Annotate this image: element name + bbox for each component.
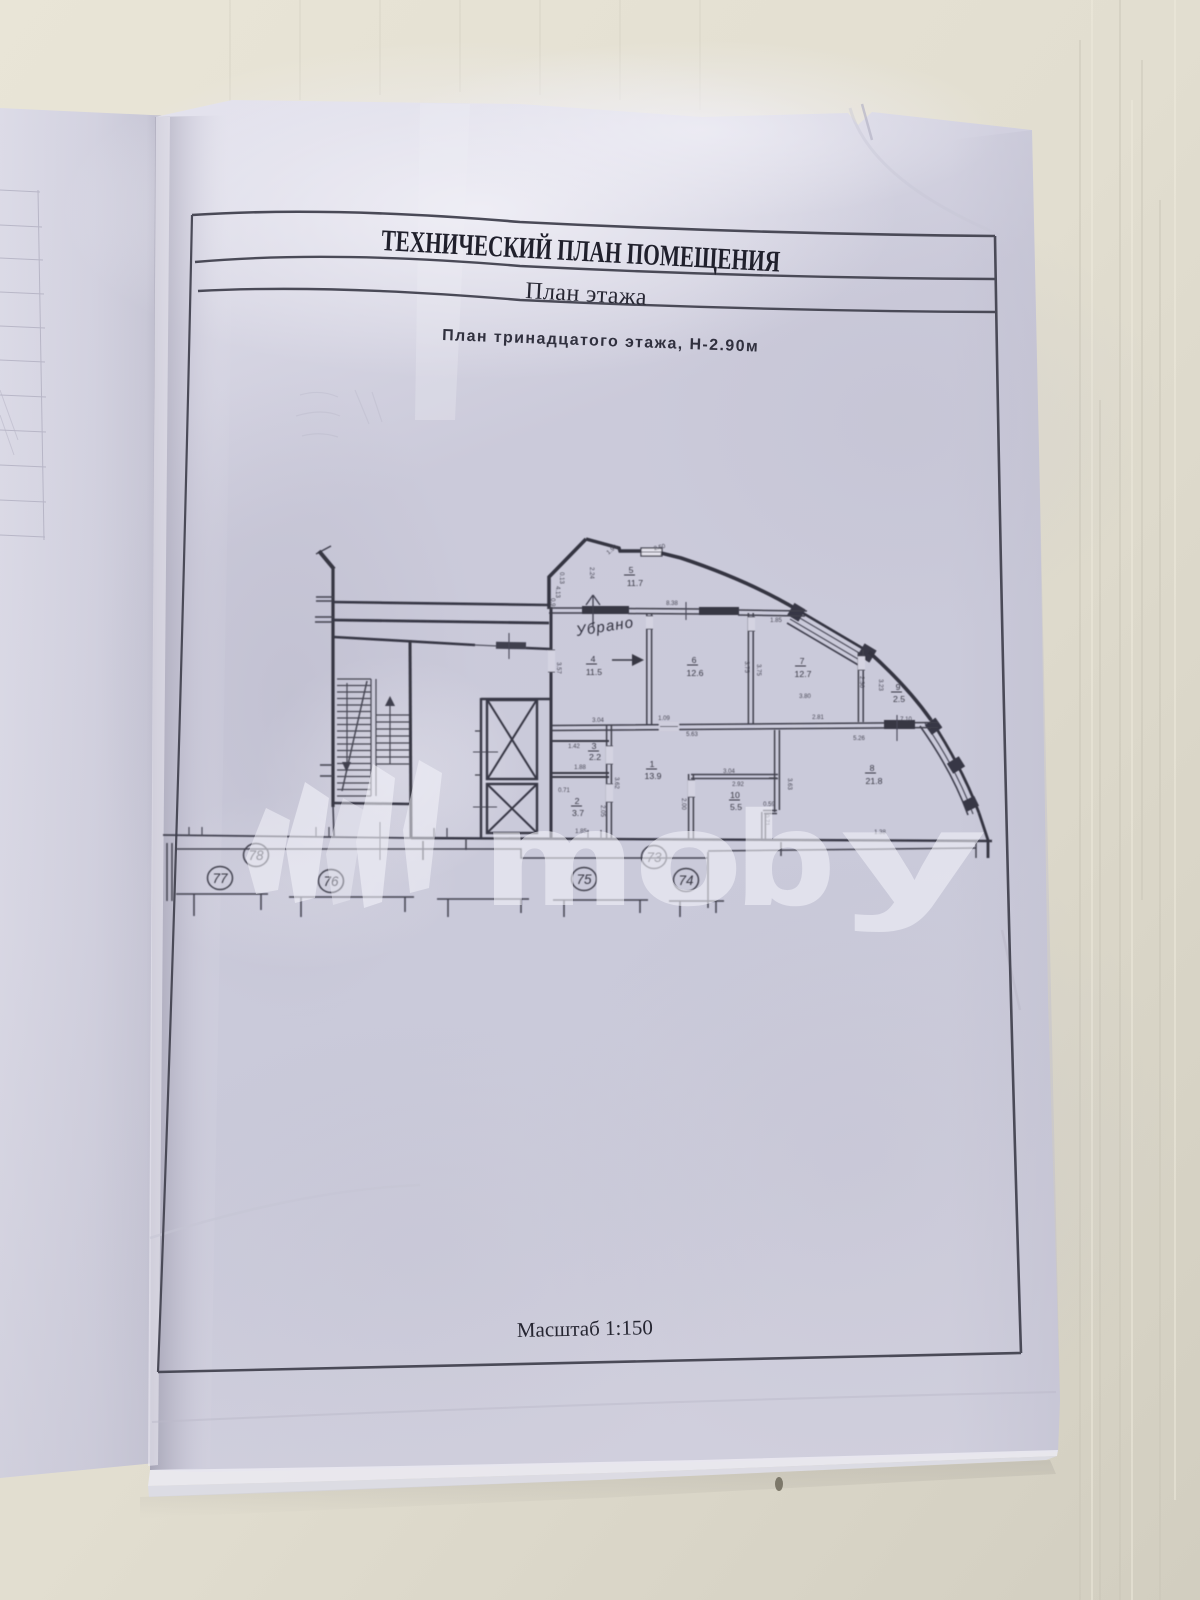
svg-text:2.5: 2.5 bbox=[893, 694, 905, 704]
svg-text:3: 3 bbox=[592, 741, 597, 751]
svg-text:13.9: 13.9 bbox=[645, 771, 662, 781]
svg-text:2.36: 2.36 bbox=[858, 676, 864, 688]
svg-text:3.57: 3.57 bbox=[555, 662, 561, 674]
svg-text:5.26: 5.26 bbox=[853, 736, 865, 742]
svg-text:1.85: 1.85 bbox=[770, 618, 782, 624]
svg-text:2.81: 2.81 bbox=[812, 715, 824, 721]
svg-text:8.38: 8.38 bbox=[666, 601, 678, 607]
svg-text:0.13: 0.13 bbox=[558, 572, 564, 584]
svg-text:6: 6 bbox=[692, 655, 697, 665]
svg-text:0.91: 0.91 bbox=[549, 598, 555, 610]
svg-text:5: 5 bbox=[629, 565, 634, 575]
svg-text:11.7: 11.7 bbox=[627, 578, 643, 588]
svg-text:8: 8 bbox=[870, 763, 875, 773]
svg-text:7.10: 7.10 bbox=[900, 717, 912, 723]
svg-text:3.23: 3.23 bbox=[877, 679, 883, 691]
svg-text:1.42: 1.42 bbox=[568, 744, 580, 750]
svg-text:y: y bbox=[846, 785, 980, 930]
svg-text:7: 7 bbox=[800, 656, 805, 666]
svg-text:11.5: 11.5 bbox=[586, 667, 602, 677]
svg-text:12.7: 12.7 bbox=[795, 669, 812, 679]
svg-text:77: 77 bbox=[212, 871, 228, 886]
svg-text:Масштаб 1:150: Масштаб 1:150 bbox=[517, 1315, 653, 1342]
svg-text:2.2: 2.2 bbox=[589, 752, 601, 762]
svg-text:9: 9 bbox=[896, 682, 901, 692]
svg-text:m: m bbox=[485, 786, 632, 931]
svg-text:3.80: 3.80 bbox=[799, 694, 811, 700]
svg-text:4: 4 bbox=[591, 654, 596, 664]
svg-text:4.13: 4.13 bbox=[554, 586, 560, 598]
svg-text:12.6: 12.6 bbox=[687, 668, 704, 678]
svg-text:1: 1 bbox=[650, 759, 655, 769]
svg-text:3.04: 3.04 bbox=[723, 769, 735, 775]
svg-text:o: o bbox=[637, 786, 740, 931]
svg-text:1.88: 1.88 bbox=[574, 765, 586, 771]
svg-text:b: b bbox=[737, 786, 834, 931]
svg-text:1.09: 1.09 bbox=[658, 716, 670, 722]
svg-text:5.63: 5.63 bbox=[686, 732, 698, 738]
svg-text:3.75: 3.75 bbox=[743, 661, 749, 673]
svg-text:3.04: 3.04 bbox=[592, 718, 604, 724]
svg-text:3.75: 3.75 bbox=[755, 664, 761, 676]
svg-text:2.24: 2.24 bbox=[588, 567, 594, 579]
